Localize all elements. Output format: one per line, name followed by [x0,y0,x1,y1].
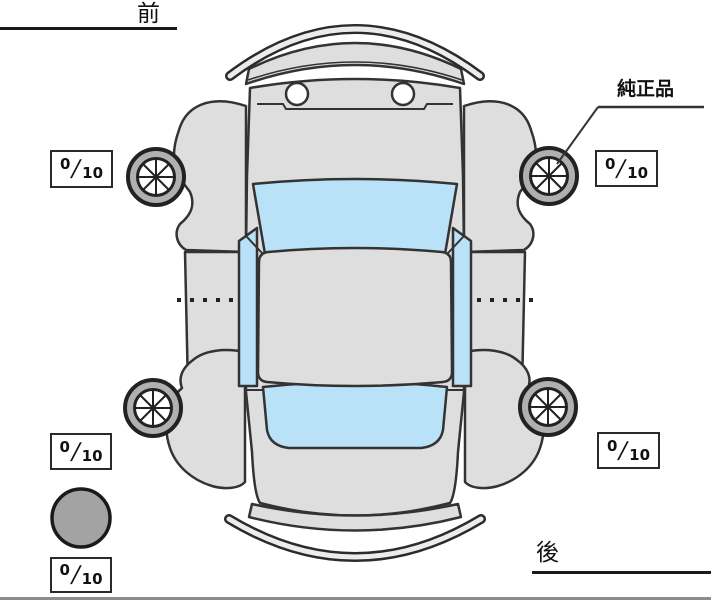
tread-value: 0 [607,437,617,455]
genuine-leader-line [557,107,598,164]
rear-underline [532,571,711,574]
hood-left-circle [286,83,308,105]
rear-window-glass [263,382,447,448]
tread-value: 0 [605,155,615,173]
tread-max: 10 [82,447,103,465]
tread-max: 10 [82,164,103,182]
rear-left-wheel-icon [125,380,181,436]
roof-panel [258,248,452,386]
spare-tire-icon [52,489,110,547]
hood-right-circle [392,83,414,105]
tread-separator: / [69,562,82,588]
front-label: 前 [137,3,160,26]
tread-score-front-right: 0 / 10 [595,150,658,187]
tread-max: 10 [629,446,650,464]
tread-max: 10 [82,570,103,588]
front-left-wheel-icon [128,149,184,205]
tread-score-rear-left: 0 / 10 [50,433,112,470]
rear-label: 後 [536,542,559,565]
tread-score-front-left: 0 / 10 [50,150,113,188]
tread-separator: / [70,156,83,182]
rear-right-wheel-icon [520,379,576,435]
tread-max: 10 [627,164,648,182]
front-right-wheel-icon [521,148,577,204]
tread-separator: / [69,439,82,465]
tread-value: 0 [59,438,69,456]
windshield-glass [253,179,457,254]
car-top-view-diagram [0,0,711,600]
tread-score-spare: 0 / 10 [50,557,112,593]
right-side-window-glass [453,228,471,386]
tread-value: 0 [60,155,70,173]
front-underline [0,27,177,30]
tread-score-rear-right: 0 / 10 [597,432,660,469]
genuine-part-label: 純正品 [617,80,674,99]
left-side-window-glass [239,228,257,386]
tread-separator: / [615,156,628,182]
vehicle-condition-diagram: 前 後 純正品 0 / 10 0 / 10 0 / 10 0 / 10 0 / … [0,0,711,600]
tread-value: 0 [59,561,69,579]
tread-separator: / [617,438,630,464]
